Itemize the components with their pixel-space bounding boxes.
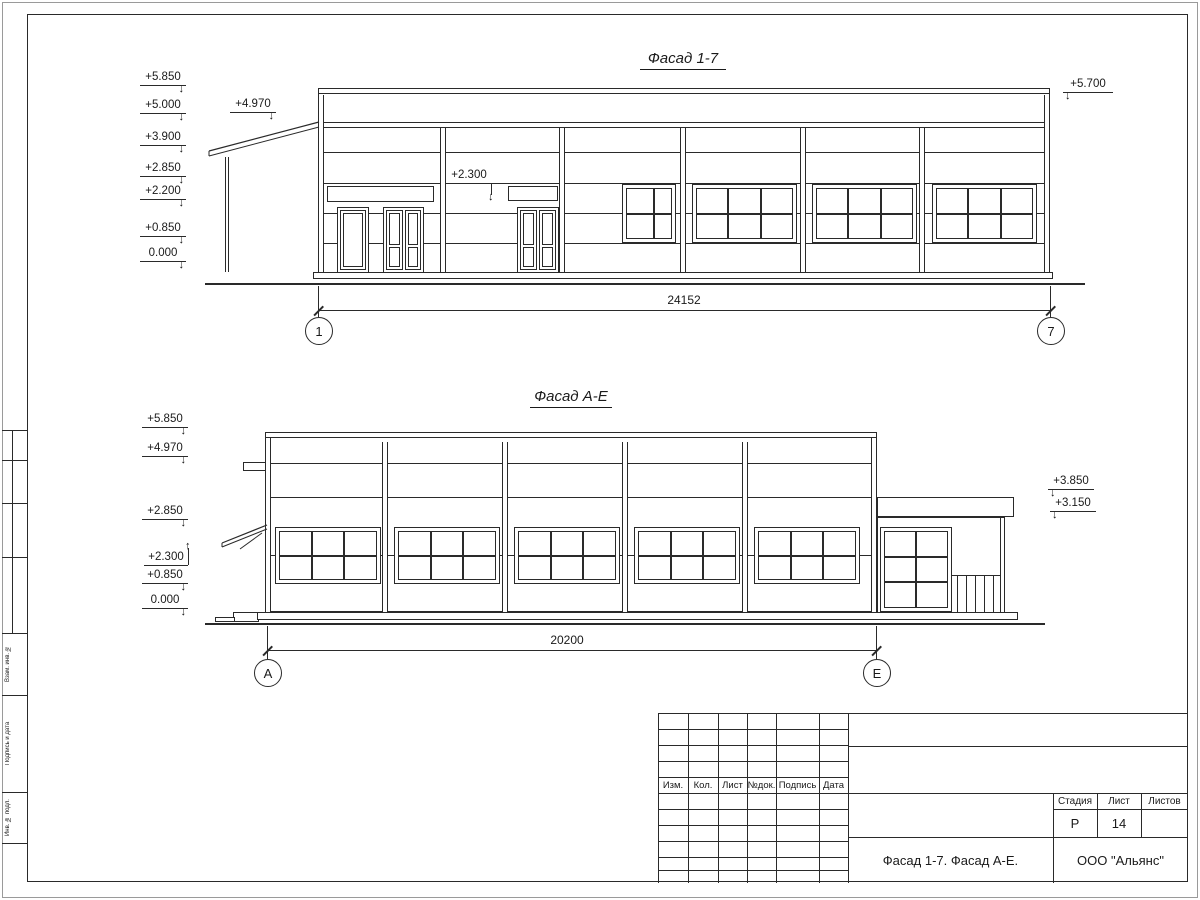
doc-title: Фасад 1-7. Фасад А-Е. [848,837,1053,883]
pane [885,532,915,556]
facade-A-E-title: Фасад А-Е [530,388,612,408]
annex-window [880,527,952,612]
line [2,460,27,461]
pilaster [502,442,508,612]
pane [792,557,823,580]
window [812,184,917,243]
line [319,93,1049,94]
pilaster [382,442,388,612]
elevation-mark: 0.000 [142,594,188,609]
elevation-mark: +4.970 [230,98,276,113]
pilaster [680,128,686,272]
stamp-label-podpis: Подпись и дата [3,697,12,790]
pane [280,532,311,555]
corner-pilaster [1044,95,1050,272]
pane [432,532,463,555]
dimension-value: 24152 [655,293,713,307]
railing-bar [984,575,985,612]
stage-value: Р [1053,809,1097,837]
line [658,841,848,842]
canopy [200,115,330,165]
pane [389,213,400,245]
elevation-arrow-icon [179,235,185,246]
pane [885,558,915,582]
extension-line [1050,286,1051,317]
ground-line [205,283,1085,285]
plinth [313,272,1053,279]
line [12,430,13,633]
line [658,870,848,871]
pilaster [800,128,806,272]
pane [552,557,583,580]
elevation-mark: +2.850 [140,162,186,177]
pane [917,532,947,556]
pane [552,532,583,555]
sheets-label: Листов [1141,794,1188,809]
elevation-mark: +0.850 [142,569,188,584]
pane [849,215,879,239]
line [658,713,1188,714]
line [658,761,848,762]
pane [817,189,847,213]
pane [584,557,615,580]
pane [432,557,463,580]
pane [697,189,727,213]
window [394,527,500,584]
window [692,184,797,243]
pane [824,532,855,555]
door-leaf [405,210,422,270]
elevation-arrow-icon [181,582,187,593]
facade-A-E-wall [265,432,877,612]
pane [759,532,790,555]
dimension-line [267,650,876,651]
railing-bar [993,575,994,612]
elevation-arrow-icon [179,198,185,209]
elevation-mark: +3.900 [140,131,186,146]
line [658,857,848,858]
pane [343,213,363,267]
line [266,463,876,464]
axis-bubble-1: 1 [305,317,333,345]
drawing-sheet: Фасад 1-7 [0,0,1200,900]
canopy-post [225,157,226,272]
elevation-arrow-icon [1052,510,1058,521]
door-leaf [340,210,366,270]
pane [762,189,792,213]
pane [817,215,847,239]
door [383,207,424,273]
pane [313,557,344,580]
entrance-lintel [327,186,434,202]
door [337,207,369,273]
pane [672,557,703,580]
railing-bar [966,575,967,612]
plinth [257,612,1018,620]
elevation-mark: +3.850 [1048,475,1094,490]
pane [399,532,430,555]
axis-bubble-7: 7 [1037,317,1065,345]
company-name: ООО "Альянс" [1053,837,1188,883]
line [2,503,27,504]
pane [542,213,553,245]
elevation-arrow-icon [179,112,185,123]
pane [408,247,419,267]
line [2,430,27,431]
pane [759,557,790,580]
door [517,207,559,273]
pane [280,557,311,580]
step [215,617,235,622]
pane [969,189,999,213]
extension-line [267,626,268,659]
elevation-arrow-icon [1065,91,1071,102]
pane [655,189,671,213]
ledge [243,462,266,471]
elevation-mark: +0.850 [140,222,186,237]
pane [849,189,879,213]
pane [345,532,376,555]
elevation-arrow-icon [179,144,185,155]
pane [542,247,553,267]
line [658,809,848,810]
pilaster [919,128,925,272]
pane [627,189,653,213]
pane [704,557,735,580]
pane [969,215,999,239]
elevation-arrow-icon [181,518,187,529]
line [658,729,848,730]
elevation-arrow-icon [179,260,185,271]
rev-col-kol: Кол. [688,778,718,793]
pane [672,532,703,555]
pilaster [440,128,446,272]
ground-line [205,623,1045,625]
railing-bar [957,575,958,612]
line [2,557,27,558]
pane [313,532,344,555]
pane [885,583,915,607]
window [634,527,740,584]
elevation-mark: +3.150 [1050,497,1096,512]
rev-col-data: Дата [819,778,848,793]
pilaster [622,442,628,612]
pane [882,215,912,239]
window [754,527,860,584]
line [2,695,27,696]
elevation-mark: +2.850 [142,505,188,520]
door-leaf [386,210,403,270]
annex-roof-band [877,497,1014,517]
elevation-mark: 0.000 [140,247,186,262]
pane [1002,189,1032,213]
rev-col-izm: Изм. [658,778,688,793]
line [266,497,876,498]
pane [882,189,912,213]
elevation-arrow-icon [179,84,185,95]
elevation-mark: +2.300 [447,169,491,184]
elevation-arrow-icon [181,455,187,466]
pane [519,532,550,555]
stamp-label-vzam: Взам. инв. № [3,635,12,693]
pane [937,215,967,239]
window [622,184,676,243]
line [658,745,848,746]
window [514,527,620,584]
pane [655,215,671,239]
line [1000,517,1001,613]
pane [697,215,727,239]
pane [937,189,967,213]
stage-label: Стадия [1053,794,1097,809]
line [658,825,848,826]
rev-col-podpis: Подпись [776,778,819,793]
extension-line [318,286,319,317]
line [2,792,27,793]
pane [639,557,670,580]
dimension-value: 20200 [538,633,596,647]
pane [762,215,792,239]
elevation-mark: +2.300 [144,551,188,566]
axis-bubble-E: Е [863,659,891,687]
pane [523,247,534,267]
pane [584,532,615,555]
elevation-arrow-icon [488,192,494,203]
pane [639,532,670,555]
elevation-mark: +4.970 [142,442,188,457]
pane [464,557,495,580]
line [266,437,876,438]
pane [408,213,419,245]
window [275,527,381,584]
pane [704,532,735,555]
line [658,793,848,794]
elevation-mark: +5.850 [140,71,186,86]
pane [729,215,759,239]
elevation-mark: +5.850 [142,413,188,428]
pilaster [742,442,748,612]
railing-bar [975,575,976,612]
elevation-mark: +5.700 [1063,78,1113,93]
door-leaf [520,210,537,270]
rev-col-dok: №док. [747,778,776,793]
pane [917,558,947,582]
door-leaf [539,210,556,270]
elevation-mark: +5.000 [140,99,186,114]
pane [399,557,430,580]
sheet-value: 14 [1097,809,1141,837]
pane [523,213,534,245]
elevation-arrow-icon [181,607,187,618]
pane [824,557,855,580]
pane [729,189,759,213]
extension-line [876,626,877,659]
elevation-mark: +2.200 [140,185,186,200]
step [233,612,259,622]
facade-1-7-title: Фасад 1-7 [640,50,726,70]
rev-col-list: Лист [718,778,747,793]
pane [917,583,947,607]
pane [345,557,376,580]
line [848,746,1188,747]
pane [627,215,653,239]
window [932,184,1037,243]
pane [792,532,823,555]
side-canopy [215,518,275,558]
sheet-label: Лист [1097,794,1141,809]
pane [464,532,495,555]
pane [389,247,400,267]
pane [1002,215,1032,239]
pane [519,557,550,580]
line [319,122,1049,123]
line [2,843,27,844]
elevation-arrow-icon [181,426,187,437]
entrance-lintel [508,186,558,201]
dimension-line [318,310,1050,311]
pilaster [559,128,565,272]
line [2,633,27,634]
axis-bubble-A: А [254,659,282,687]
elevation-arrow-icon [269,111,275,122]
elevation-arrow-icon [185,541,191,552]
canopy-post [228,157,229,272]
stamp-label-inv: Инв. № подл. [3,794,12,841]
